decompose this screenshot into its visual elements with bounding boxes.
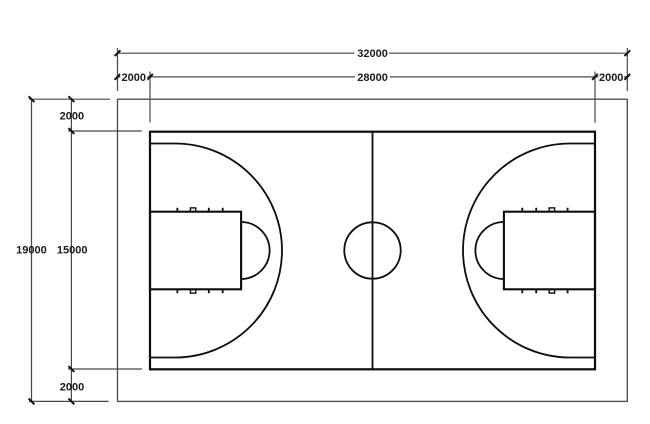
svg-text:2000: 2000 (599, 72, 623, 84)
svg-text:28000: 28000 (357, 72, 388, 84)
svg-text:2000: 2000 (60, 110, 84, 122)
svg-text:19000: 19000 (16, 244, 47, 256)
svg-text:32000: 32000 (357, 48, 388, 60)
svg-text:2000: 2000 (122, 72, 146, 84)
svg-text:2000: 2000 (60, 381, 84, 393)
svg-text:15000: 15000 (57, 244, 88, 256)
